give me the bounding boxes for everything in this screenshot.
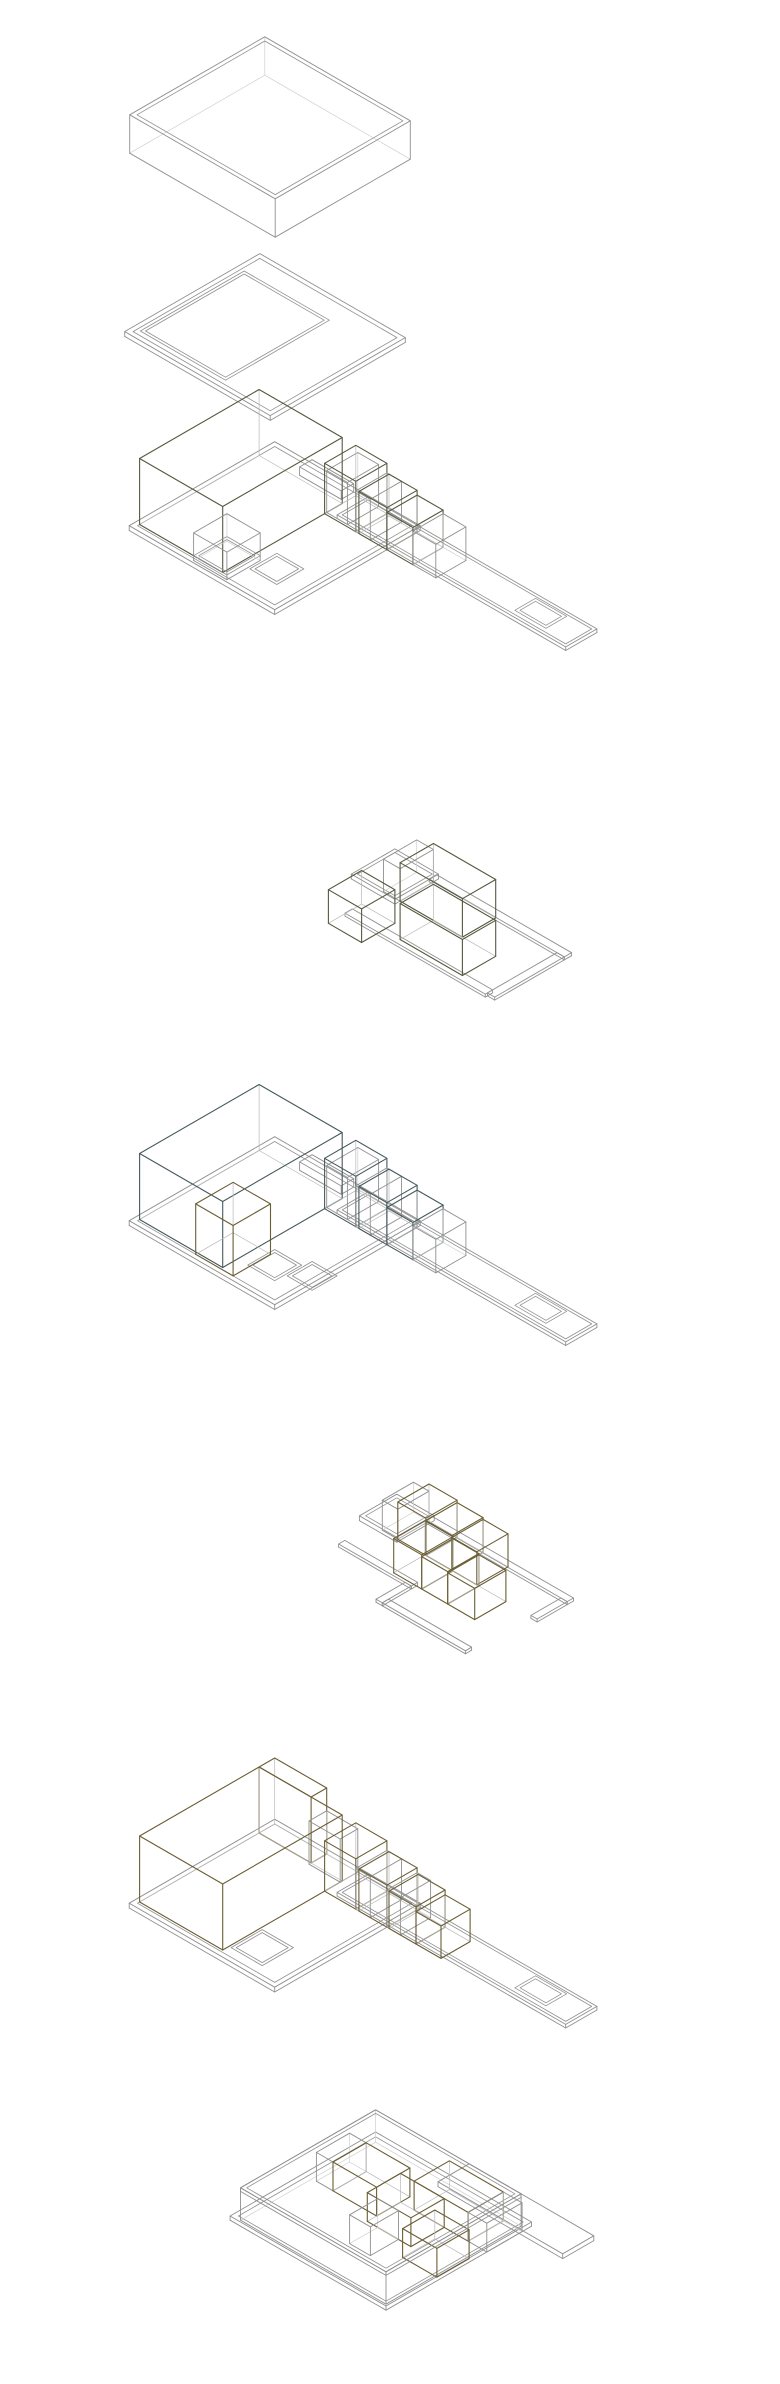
- diagram-geometry: [417, 532, 443, 547]
- diagram-geometry: [389, 1928, 416, 1944]
- diagram-geometry: [337, 1214, 566, 1346]
- diagram-geometry: [250, 553, 304, 584]
- diagram-geometry: [137, 41, 403, 195]
- diagram-geometry: [362, 923, 395, 942]
- diagram-geometry: [400, 904, 462, 976]
- diagram-geometry: [400, 940, 462, 976]
- diagram-geometry: [359, 516, 389, 533]
- diagram-geometry: [414, 2161, 503, 2213]
- diagram-geometry: [129, 1819, 420, 1987]
- diagram-geometry: [462, 918, 495, 937]
- diagram-geometry: [259, 1833, 342, 1881]
- diagram-geometry: [413, 1209, 466, 1240]
- diagram-geometry: [140, 1220, 223, 1268]
- diagram-geometry: [384, 892, 401, 902]
- diagram-geometry: [411, 2227, 444, 2246]
- diagram-geometry: [196, 1233, 233, 1255]
- diagram-geometry: [479, 1586, 506, 1602]
- diagram-geometry: [140, 1833, 260, 1902]
- diagram-geometry: [316, 2181, 333, 2191]
- diagram-geometry: [259, 1758, 327, 1797]
- layer-ground-floor-walls: [129, 1758, 597, 2028]
- diagram-geometry: [387, 1245, 413, 1260]
- diagram-geometry: [140, 456, 260, 525]
- diagram-geometry: [377, 2168, 410, 2216]
- diagram-geometry: [337, 519, 566, 651]
- diagram-geometry: [248, 1250, 302, 1281]
- diagram-geometry: [435, 2239, 469, 2259]
- diagram-geometry: [426, 1523, 567, 1605]
- diagram-geometry: [394, 1555, 425, 1573]
- diagram-geometry: [233, 1254, 270, 1276]
- diagram-geometry: [413, 514, 466, 545]
- diagram-geometry: [356, 1209, 387, 1227]
- layer-basement-volumes: [230, 2110, 594, 2310]
- diagram-geometry: [230, 2132, 531, 2306]
- diagram-geometry: [378, 2227, 399, 2239]
- diagram-geometry: [362, 904, 395, 923]
- layer-second-floor-volumes: [328, 840, 571, 1000]
- diagram-geometry: [328, 904, 361, 923]
- diagram-geometry: [259, 456, 342, 504]
- diagram-geometry: [413, 1242, 443, 1259]
- diagram-geometry: [359, 1894, 389, 1911]
- diagram-geometry: [414, 2161, 503, 2213]
- diagram-geometry: [125, 336, 271, 420]
- diagram-geometry: [376, 2142, 521, 2226]
- diagram-geometry: [403, 2257, 437, 2277]
- diagram-geometry: [477, 1534, 508, 1585]
- diagram-geometry: [328, 923, 361, 942]
- diagram-geometry: [309, 1811, 358, 1839]
- diagram-geometry: [227, 541, 260, 560]
- diagram-geometry: [345, 909, 493, 994]
- diagram-geometry: [475, 1602, 506, 1620]
- diagram-geometry: [231, 1930, 293, 1966]
- diagram-geometry: [350, 2227, 378, 2243]
- diagram-geometry: [140, 1902, 223, 1950]
- diagram-geometry: [382, 1599, 471, 1651]
- diagram-geometry: [413, 547, 443, 564]
- diagram-geometry: [362, 890, 395, 943]
- diagram-geometry: [359, 1211, 389, 1228]
- diagram-geometry: [129, 1137, 420, 1305]
- diagram-geometry: [265, 75, 411, 159]
- diagram-geometry: [441, 1942, 470, 1959]
- diagram-geometry: [400, 920, 433, 939]
- diagram-geometry: [370, 2239, 398, 2255]
- diagram-geometry: [356, 1891, 387, 1909]
- diagram-geometry: [129, 442, 420, 610]
- diagram-geometry: [345, 916, 485, 997]
- diagram-geometry: [337, 1896, 566, 2028]
- diagram-geometry: [255, 556, 299, 581]
- layer-first-floor-volumes: [339, 1482, 574, 1654]
- diagram-geometry: [398, 1484, 457, 1518]
- diagram-geometry: [145, 274, 324, 377]
- diagram-geometry: [241, 2220, 387, 2304]
- diagram-geometry: [411, 2199, 444, 2247]
- diagram-geometry: [394, 1521, 453, 1555]
- diagram-geometry: [327, 513, 348, 525]
- diagram-geometry: [140, 1085, 343, 1202]
- diagram-geometry: [515, 1976, 567, 2006]
- diagram-geometry: [515, 598, 567, 628]
- diagram-geometry: [370, 522, 401, 540]
- diagram-geometry: [537, 1605, 567, 1622]
- diagram-geometry: [259, 1824, 275, 1833]
- diagram-geometry: [140, 1767, 343, 1884]
- diagram-geometry: [125, 254, 406, 416]
- diagram-geometry: [436, 1256, 466, 1273]
- diagram-geometry: [140, 1151, 260, 1220]
- diagram-geometry: [359, 1521, 396, 1543]
- diagram-geometry: [140, 1085, 343, 1202]
- diagram-geometry: [140, 1767, 343, 1884]
- diagram-geometry: [448, 1604, 475, 1620]
- diagram-geometry: [350, 2199, 399, 2227]
- diagram-geometry: [275, 159, 410, 237]
- diagram-geometry: [384, 840, 434, 869]
- diagram-page: [0, 0, 780, 2384]
- diagram-geometry: [241, 2142, 376, 2220]
- diagram-geometry: [309, 1854, 327, 1864]
- exploded-axon-figure: [0, 0, 780, 2384]
- diagram-geometry: [292, 1265, 332, 1288]
- diagram-geometry: [422, 1589, 448, 1604]
- diagram-geometry: [468, 2241, 487, 2252]
- diagram-geometry: [133, 258, 397, 410]
- diagram-geometry: [350, 2244, 371, 2256]
- diagram-geometry: [401, 2202, 445, 2227]
- diagram-geometry: [140, 271, 329, 380]
- diagram-geometry: [386, 2226, 521, 2304]
- diagram-geometry: [425, 1555, 453, 1571]
- diagram-geometry: [397, 1521, 434, 1543]
- diagram-geometry: [495, 960, 565, 1000]
- diagram-geometry: [230, 2220, 386, 2310]
- diagram-geometry: [227, 561, 260, 580]
- diagram-geometry: [129, 1908, 275, 1992]
- diagram-geometry: [333, 2162, 377, 2216]
- diagram-geometry: [422, 1539, 479, 1572]
- diagram-geometry: [417, 1227, 443, 1242]
- diagram-geometry: [398, 1539, 426, 1555]
- diagram-geometry: [130, 75, 265, 153]
- layer-first-floor-walls: [129, 1085, 597, 1346]
- diagram-geometry: [140, 390, 343, 507]
- diagram-geometry: [130, 37, 411, 199]
- diagram-geometry: [350, 2162, 367, 2172]
- diagram-geometry: [238, 2137, 523, 2301]
- diagram-geometry: [359, 1494, 434, 1537]
- diagram-geometry: [563, 2241, 594, 2259]
- diagram-geometry: [259, 1151, 342, 1199]
- diagram-geometry: [403, 2229, 437, 2278]
- diagram-geometry: [339, 1547, 412, 1589]
- diagram-geometry: [386, 2197, 521, 2275]
- diagram-geometry: [382, 1482, 429, 1509]
- diagram-geometry: [241, 2191, 387, 2275]
- diagram-geometry: [270, 342, 405, 420]
- diagram-geometry: [400, 844, 496, 899]
- diagram-geometry: [129, 1226, 275, 1310]
- diagram-geometry: [356, 514, 387, 532]
- diagram-geometry: [333, 2172, 366, 2191]
- diagram-geometry: [452, 1519, 508, 1551]
- diagram-geometry: [370, 1900, 401, 1918]
- diagram-geometry: [422, 1539, 479, 1572]
- diagram-geometry: [462, 920, 495, 975]
- diagram-geometry: [140, 390, 343, 507]
- diagram-geometry: [130, 153, 276, 237]
- diagram-geometry: [487, 2232, 522, 2252]
- diagram-geometry: [462, 956, 495, 975]
- diagram-geometry: [129, 531, 275, 615]
- diagram-geometry: [468, 2192, 522, 2223]
- diagram-geometry: [387, 1910, 417, 1927]
- diagram-geometry: [468, 2221, 503, 2241]
- diagram-geometry: [370, 1217, 401, 1235]
- diagram-geometry: [400, 882, 433, 901]
- diagram-geometry: [366, 1498, 428, 1534]
- layer-roof-slab: [125, 254, 406, 421]
- diagram-geometry: [259, 1758, 327, 1797]
- diagram-geometry: [429, 875, 571, 957]
- diagram-geometry: [394, 1521, 453, 1555]
- diagram-geometry: [327, 1208, 348, 1220]
- diagram-geometry: [194, 541, 227, 560]
- diagram-geometry: [487, 953, 564, 997]
- diagram-geometry: [515, 1293, 567, 1323]
- layer-second-floor-walls: [129, 390, 597, 651]
- diagram-geometry: [382, 1606, 465, 1654]
- diagram-geometry: [382, 1589, 411, 1606]
- diagram-geometry: [416, 1944, 441, 1958]
- diagram-geometry: [398, 1484, 457, 1518]
- diagram-geometry: [452, 1519, 508, 1551]
- diagram-geometry: [436, 561, 466, 578]
- diagram-geometry: [437, 2259, 469, 2278]
- layer-roof-volume: [130, 37, 411, 237]
- diagram-geometry: [387, 550, 413, 565]
